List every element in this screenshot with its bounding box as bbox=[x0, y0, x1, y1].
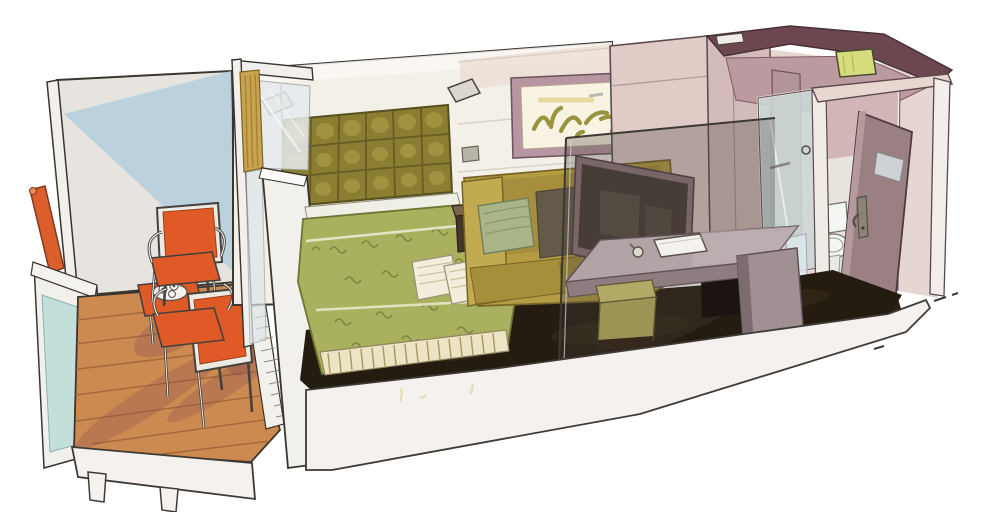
slab-leg-mid bbox=[160, 487, 178, 512]
corridor-right-band bbox=[930, 78, 950, 296]
sofa-pillow-sage bbox=[478, 198, 534, 254]
light-switch-plate bbox=[462, 146, 479, 162]
slab-leg-left bbox=[88, 472, 106, 502]
cabin-cutaway-illustration bbox=[0, 0, 1000, 512]
bathroom-ceiling-light bbox=[836, 49, 876, 77]
handrail-cap bbox=[30, 188, 37, 195]
stool bbox=[596, 280, 656, 350]
window-glass-lower bbox=[246, 170, 266, 344]
kettle bbox=[633, 247, 643, 257]
